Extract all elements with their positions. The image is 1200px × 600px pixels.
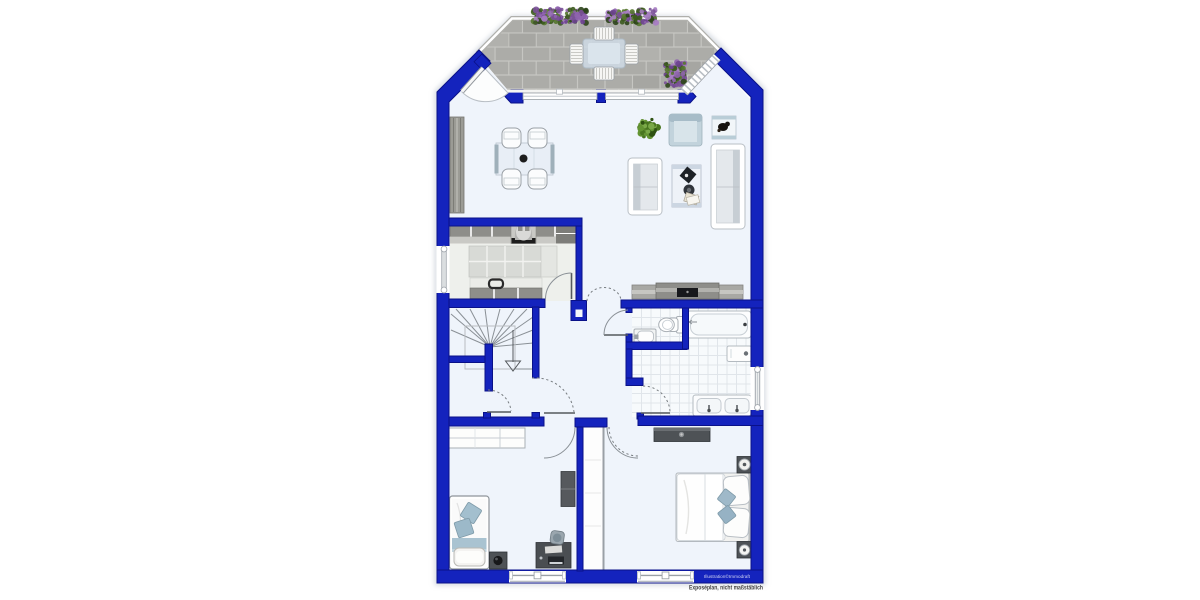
- svg-text:Exposéplan, nicht maßstäblich: Exposéplan, nicht maßstäblich: [689, 585, 763, 592]
- svg-text:Illustration©Immodraft: Illustration©Immodraft: [704, 573, 751, 580]
